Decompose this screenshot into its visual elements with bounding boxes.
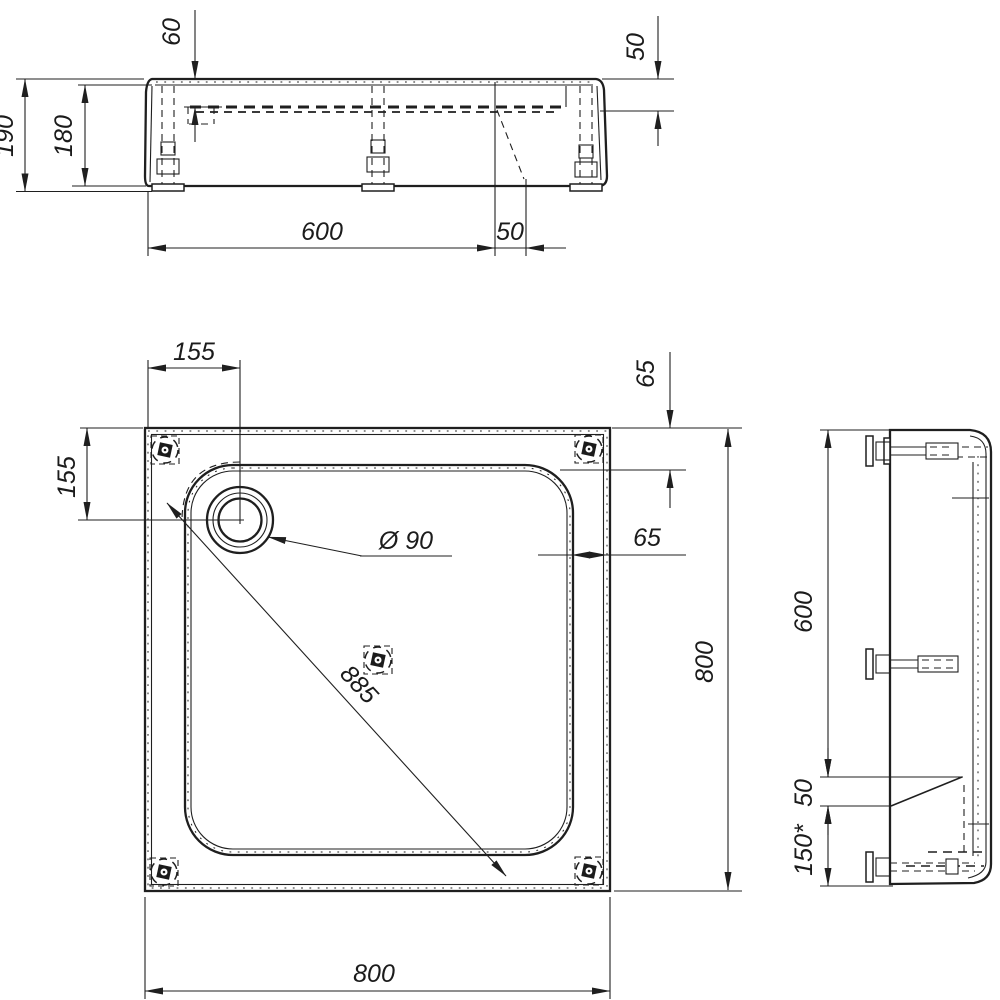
dim-label-drain-x-155: 155 bbox=[173, 338, 215, 366]
dim-label-side-150: 150* bbox=[790, 823, 818, 876]
dim-label-drop-50: 50 bbox=[622, 33, 650, 61]
dim-label-length-600: 600 bbox=[301, 218, 343, 246]
drawing-sheet: 60 190 180 600 50 50 bbox=[0, 0, 1000, 1000]
dim-label-drain-diameter: Ø 90 bbox=[378, 527, 433, 555]
dim-label-width-800: 800 bbox=[353, 960, 395, 988]
dim-drain-y-155: 155 bbox=[53, 428, 143, 520]
dim-offset-50: 50 bbox=[495, 218, 566, 248]
dim-length-600: 600 bbox=[148, 218, 495, 248]
dim-label-offset-50: 50 bbox=[496, 218, 524, 246]
dim-width-800: 800 bbox=[145, 897, 610, 999]
dim-label-height-190: 190 bbox=[0, 115, 19, 157]
dim-side-600: 600 bbox=[790, 430, 828, 777]
dim-height-180: 180 bbox=[50, 85, 85, 186]
dim-side-50: 50 bbox=[790, 748, 828, 835]
dim-drain-x-155: 155 bbox=[148, 338, 240, 428]
dim-label-corner-offset-65: 65 bbox=[632, 360, 660, 388]
front-elevation-view: 60 190 180 600 50 50 bbox=[0, 10, 674, 256]
dim-label-height-180: 180 bbox=[50, 115, 78, 157]
dim-label-depth-60: 60 bbox=[158, 18, 186, 46]
dim-label-rim-width-65: 65 bbox=[633, 524, 661, 552]
dim-drop-50: 50 bbox=[622, 16, 658, 146]
technical-drawing: 60 190 180 600 50 50 bbox=[0, 0, 1000, 1000]
side-view: 600 50 150* bbox=[790, 430, 991, 886]
dim-side-150: 150* bbox=[790, 806, 828, 886]
plan-view: 885 Ø 90 155 155 65 65 800 bbox=[53, 338, 742, 999]
dim-height-190: 190 bbox=[0, 79, 25, 192]
dim-length-800: 800 bbox=[612, 428, 742, 891]
dim-label-drain-y-155: 155 bbox=[53, 456, 81, 498]
dim-label-length-800: 800 bbox=[691, 641, 719, 683]
dim-label-side-600: 600 bbox=[790, 591, 818, 633]
dim-label-side-50: 50 bbox=[790, 779, 818, 807]
front-outline bbox=[145, 79, 607, 186]
